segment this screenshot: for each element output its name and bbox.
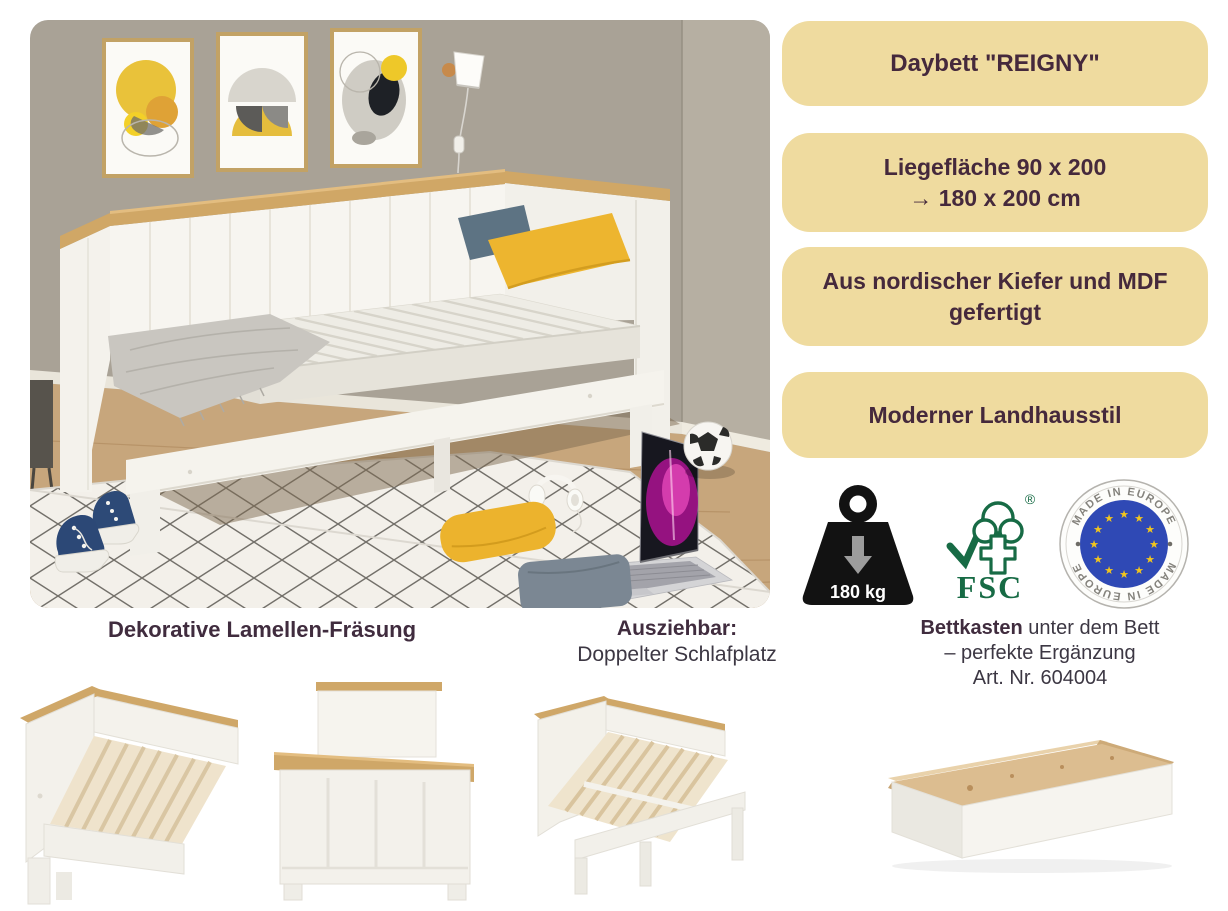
svg-text:★: ★ (1145, 524, 1155, 536)
weight-capacity-icon: 180 kg (798, 478, 918, 608)
badge-line: Daybett "REIGNY" (890, 48, 1099, 79)
product-thumb-drawer (862, 730, 1197, 880)
svg-text:★: ★ (1119, 569, 1129, 581)
bed-leg-middle (434, 437, 450, 493)
wall-art-2 (216, 32, 308, 172)
badge-material: Aus nordischer Kiefer und MDF gefertigt (782, 247, 1208, 346)
wall-right (682, 20, 770, 452)
svg-text:★: ★ (1093, 554, 1103, 566)
wall-art-3 (330, 28, 422, 168)
svg-text:★: ★ (1145, 554, 1155, 566)
product-thumb-side-panel (266, 670, 482, 902)
product-thumb-corner-slats (14, 666, 240, 906)
feature-caption-storage: Bettkasten unter dem Bett – perfekte Erg… (872, 616, 1208, 691)
svg-text:★: ★ (1149, 539, 1159, 551)
made-in-europe-badge: ★★★ ★★★ ★★★ ★★★ MADE IN EUROPE MADE IN E… (1058, 478, 1190, 610)
feature-caption-extendable: Ausziehbar: Doppelter Schlafplatz (527, 616, 827, 668)
feature-title: Ausziehbar: (527, 616, 827, 642)
fsc-label: FSC (957, 569, 1023, 604)
badge-line: Liegefläche 90 x 200 (884, 152, 1106, 183)
badge-product-name: Daybett "REIGNY" (782, 21, 1208, 106)
svg-text:★: ★ (1134, 513, 1144, 525)
svg-text:★: ★ (1104, 565, 1114, 577)
badge-dimensions: Liegefläche 90 x 200 → 180 x 200 cm (782, 133, 1208, 232)
svg-text:★: ★ (1093, 524, 1103, 536)
fsc-logo: ® FSC (938, 486, 1042, 604)
svg-text:★: ★ (1134, 565, 1144, 577)
weight-capacity-label: 180 kg (830, 582, 886, 602)
feature-title-rest: unter dem Bett (1023, 617, 1160, 639)
feature-line2: – perfekte Ergänzung (872, 641, 1208, 666)
product-thumb-extended (520, 684, 755, 899)
badge-line: gefertigt (949, 297, 1041, 328)
feature-caption-slats: Dekorative Lamellen-Fräsung (62, 617, 462, 642)
feature-title-line: Bettkasten unter dem Bett (872, 616, 1208, 641)
soccer-ball (684, 422, 735, 479)
fsc-tree (974, 503, 1022, 573)
page-canvas: Daybett "REIGNY" Liegefläche 90 x 200 → … (0, 0, 1228, 911)
feature-title-bold: Bettkasten (920, 617, 1022, 639)
feature-title: Dekorative Lamellen-Fräsung (62, 617, 462, 642)
badge-style: Moderner Landhausstil (782, 372, 1208, 458)
svg-text:★: ★ (1089, 539, 1099, 551)
room-scene (30, 20, 770, 608)
svg-text:★: ★ (1119, 509, 1129, 521)
wall-art-1 (102, 38, 194, 178)
badge-line: Aus nordischer Kiefer und MDF (822, 266, 1167, 297)
svg-text:★: ★ (1104, 513, 1114, 525)
badge-line: Moderner Landhausstil (868, 400, 1121, 431)
badge-line: → 180 x 200 cm (909, 183, 1080, 214)
feature-subtitle: Doppelter Schlafplatz (527, 642, 827, 668)
hero-photo (30, 20, 770, 608)
fsc-registered-mark: ® (1025, 491, 1036, 507)
feature-line3: Art. Nr. 604004 (872, 666, 1208, 691)
